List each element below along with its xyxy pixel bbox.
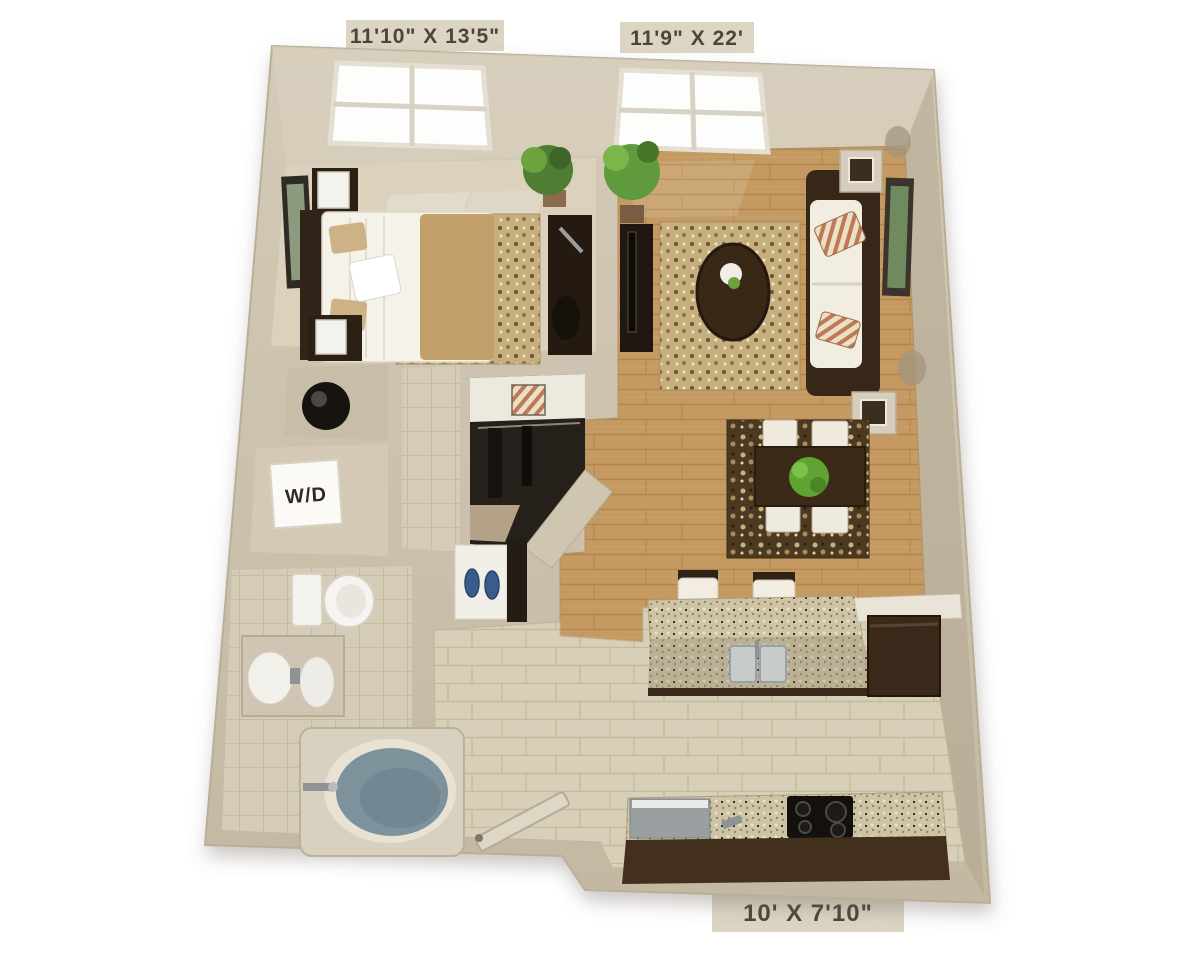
bed-blanket [420, 214, 494, 360]
vanity-faucet [290, 668, 300, 684]
dishwasher-handle [632, 800, 708, 808]
slipper [465, 569, 479, 597]
dining-area [727, 420, 869, 558]
cabinet-base [622, 836, 950, 884]
bedroom-dimensions-label: 11'10" X 13'5" [350, 25, 500, 48]
washer-dryer-label: W/D [284, 484, 327, 509]
plant-leaves [810, 477, 826, 493]
table-decor-plant [728, 277, 740, 289]
burner [831, 823, 845, 837]
table-lamp [318, 172, 349, 208]
plant-pot [620, 205, 644, 223]
refrigerator [868, 616, 940, 696]
table-lamp [316, 320, 346, 354]
burner [826, 802, 846, 822]
island-countertop [648, 596, 862, 640]
dining-chair [763, 420, 797, 447]
closet-storage-box [512, 385, 545, 415]
toilet-seat [336, 584, 366, 618]
bedroom-window [330, 63, 490, 148]
kitchen-sink [760, 646, 786, 682]
door-handle [475, 834, 483, 842]
plant-leaves [603, 145, 629, 171]
kitchen-sink [730, 646, 756, 682]
pillow [328, 222, 368, 255]
living-room-window [616, 70, 768, 152]
hanging-clothes [488, 428, 502, 498]
island-base [648, 688, 877, 696]
plant-leaves [637, 141, 659, 163]
television [628, 232, 636, 332]
shoe-niche [455, 540, 527, 622]
slipper [485, 571, 499, 599]
burner [799, 821, 811, 833]
living-room-dimensions-label: 11'9" X 22' [630, 27, 744, 50]
dining-chair [812, 421, 848, 448]
plant-leaves [521, 147, 547, 173]
plant-leaves [792, 462, 808, 478]
refrigerator-edge [870, 624, 938, 626]
wall-decor-spot [885, 126, 911, 158]
dining-chair [766, 505, 800, 532]
vanity-sink [300, 657, 334, 707]
burner [796, 802, 810, 816]
plant-leaves [549, 147, 571, 169]
floor-plan-canvas: 11'10" X 13'5" 11'9" X 22' 10' X 7'10" [0, 0, 1200, 960]
floor-plan: 11'10" X 13'5" 11'9" X 22' 10' X 7'10" [0, 0, 1200, 960]
bathtub-water-depth [360, 768, 440, 828]
wall-decor-spot [898, 350, 926, 386]
dining-chair [812, 506, 848, 533]
kitchen-dimensions-label: 10' X 7'10" [743, 900, 873, 927]
toilet-tank [292, 574, 322, 626]
coffee-table [697, 244, 769, 340]
wall-art [887, 186, 909, 289]
water-heater [302, 382, 350, 430]
hanging-clothes [522, 426, 532, 486]
desk-chair [552, 296, 580, 340]
niche-dark-wall [507, 540, 527, 622]
cube-lamp [849, 158, 873, 182]
vanity-sink [248, 652, 292, 704]
hallway-tile-floor [402, 366, 460, 552]
water-heater-cap [311, 391, 327, 407]
tub-faucet [303, 783, 331, 791]
tub-faucet-head [328, 782, 338, 792]
